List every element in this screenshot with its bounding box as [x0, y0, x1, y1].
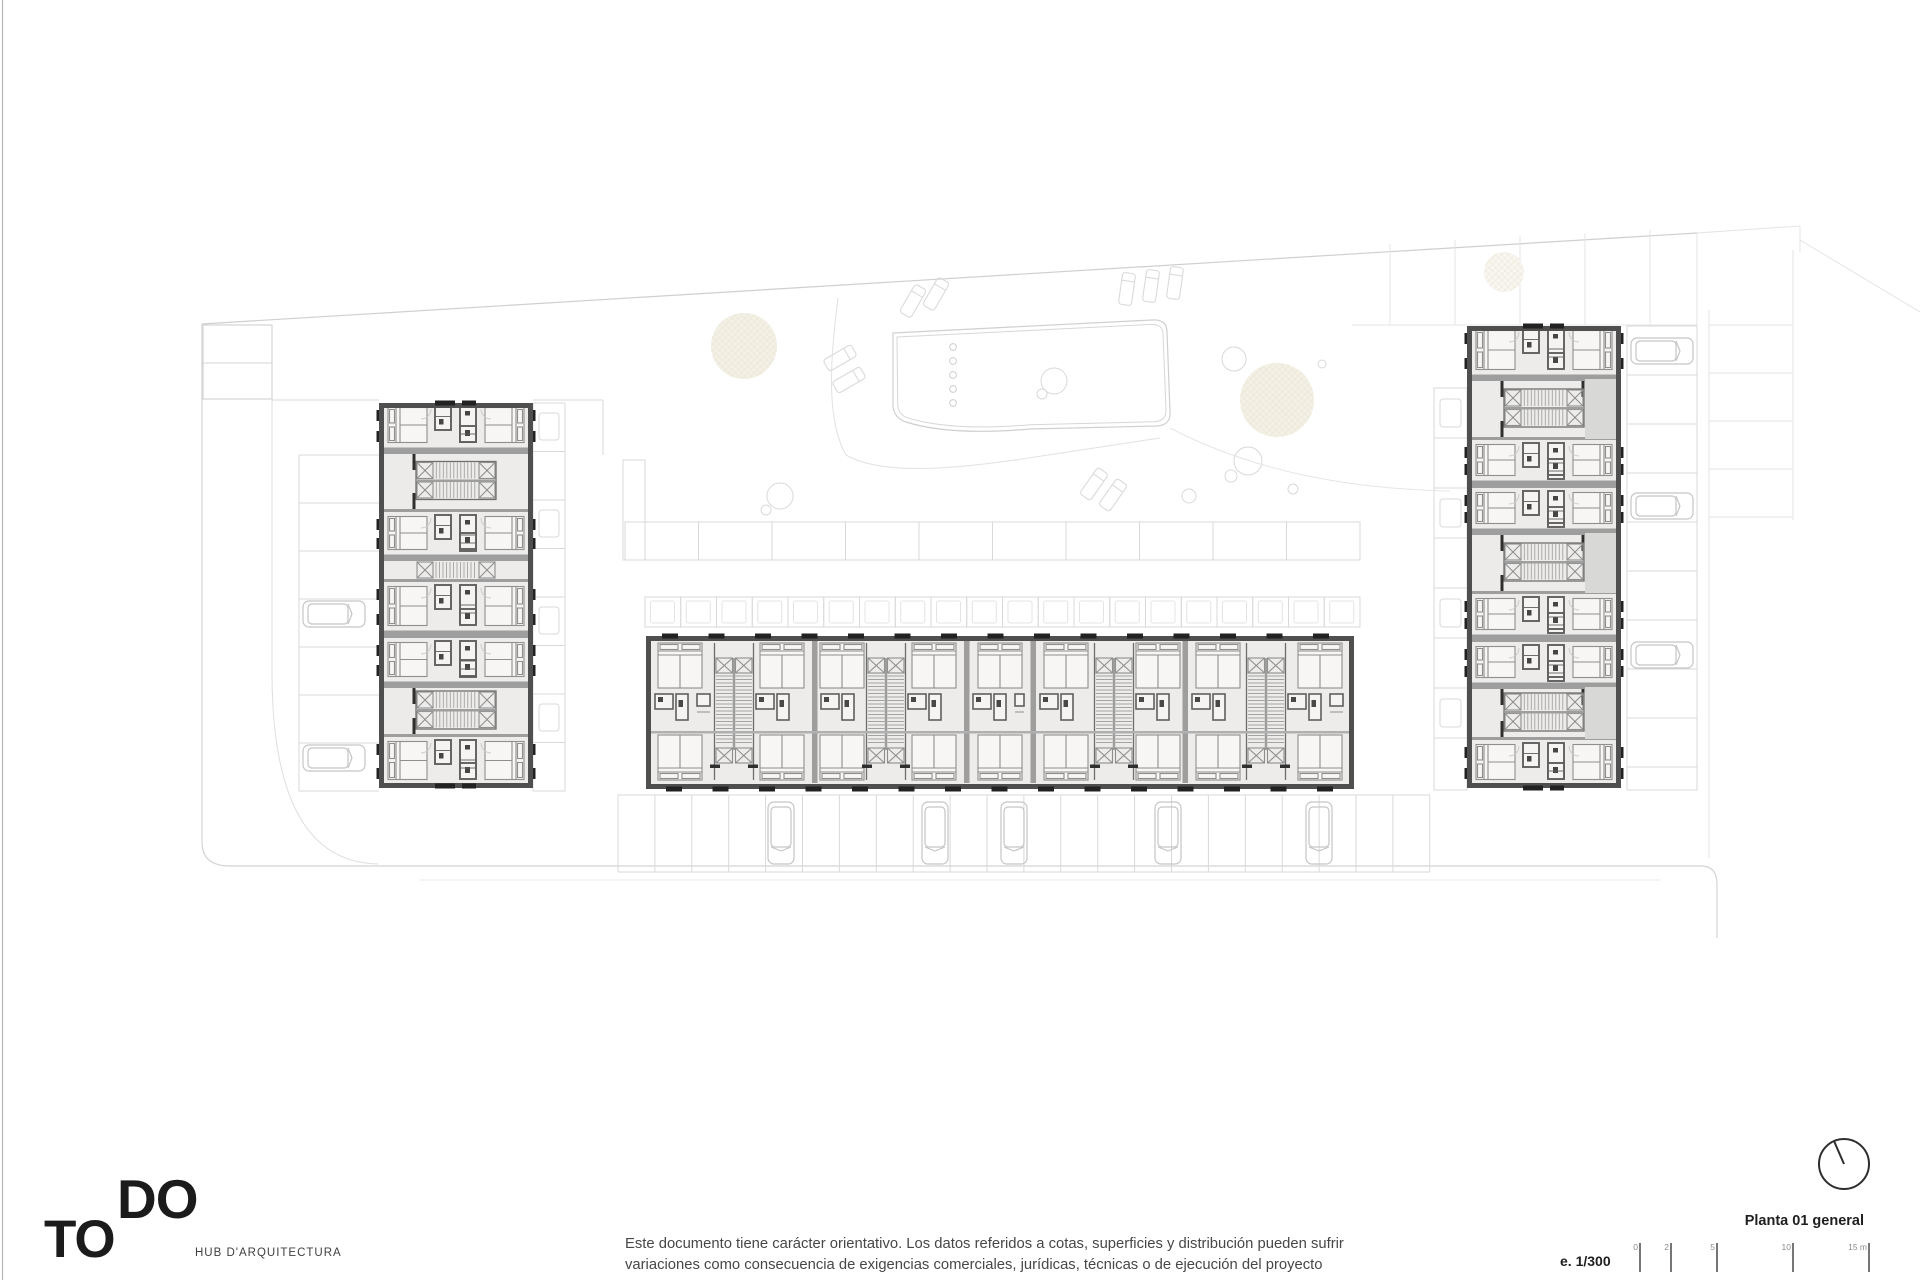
svg-text:DO: DO [117, 1168, 198, 1230]
svg-text:Planta 01 general: Planta 01 general [1745, 1213, 1864, 1229]
svg-text:2: 2 [1664, 1242, 1669, 1252]
svg-text:HUB D'ARQUITECTURA: HUB D'ARQUITECTURA [195, 1247, 342, 1259]
svg-text:5: 5 [1710, 1242, 1715, 1252]
svg-text:Este documento tiene carácter: Este documento tiene carácter orientativ… [625, 1236, 1344, 1252]
svg-text:variaciones como consecuencia: variaciones como consecuencia de exigenc… [625, 1257, 1322, 1273]
svg-text:15 m: 15 m [1848, 1242, 1867, 1252]
svg-text:10: 10 [1782, 1242, 1792, 1252]
svg-text:0: 0 [1633, 1242, 1638, 1252]
svg-text:TO: TO [44, 1210, 115, 1269]
svg-text:e. 1/300: e. 1/300 [1560, 1253, 1611, 1269]
